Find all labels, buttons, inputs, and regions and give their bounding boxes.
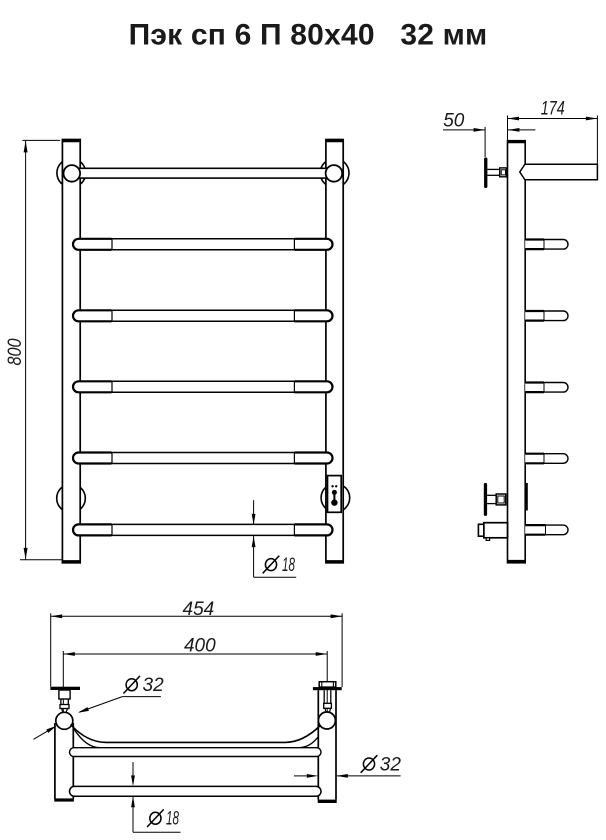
svg-text:454: 454 [183,599,215,620]
svg-text:32: 32 [380,754,402,775]
svg-text:Пэк сп 6 П 80x40 32 мм: Пэк сп 6 П 80x40 32 мм [129,19,488,52]
svg-text:18: 18 [166,809,179,830]
svg-text:174: 174 [541,99,565,120]
svg-text:18: 18 [282,555,295,576]
svg-text:50: 50 [443,111,465,132]
svg-text:400: 400 [184,635,216,656]
svg-text:32: 32 [143,675,165,696]
svg-text:800: 800 [5,338,26,365]
